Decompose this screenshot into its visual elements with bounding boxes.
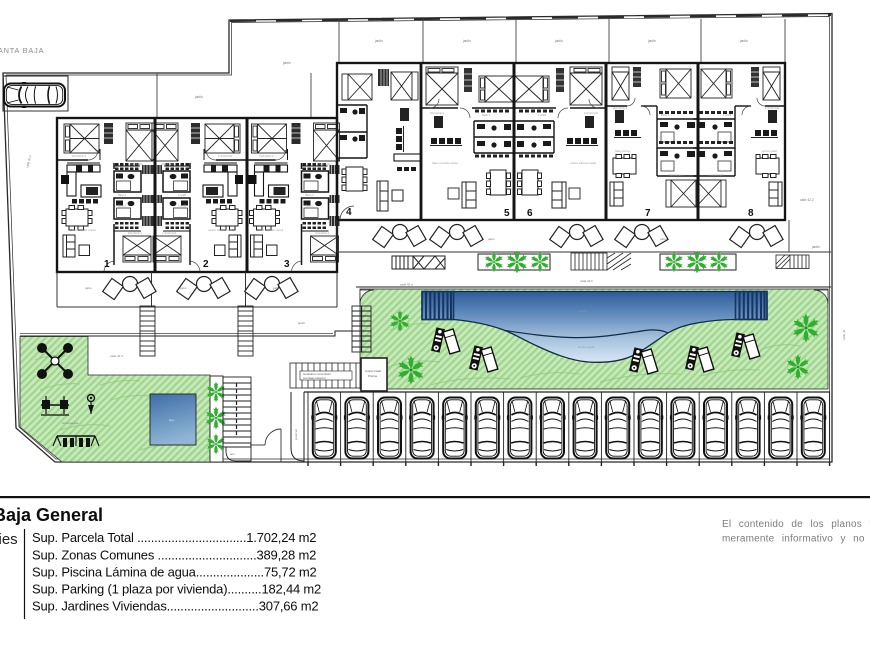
svg-text:patio: patio: [85, 286, 92, 290]
svg-text:calle 42: calle 42: [842, 329, 846, 340]
svg-text:Piscina: Piscina: [368, 374, 377, 378]
svg-text:7: 7: [645, 208, 651, 219]
svg-text:piscina: piscina: [578, 309, 588, 313]
svg-text:jardin: jardin: [811, 245, 820, 249]
svg-text:8: 8: [748, 208, 754, 219]
svg-text:jardin: jardin: [297, 321, 306, 325]
svg-text:(montaje cubierto): (montaje cubierto): [303, 376, 326, 380]
svg-text:lamina agua: lamina agua: [578, 345, 595, 349]
svg-text:Cuarto Instal.: Cuarto Instal.: [365, 369, 382, 373]
svg-text:calle 42.b: calle 42.b: [580, 279, 593, 283]
svg-text:calle 42.a: calle 42.a: [400, 283, 413, 287]
svg-text:cies: cies: [0, 531, 18, 548]
svg-text:1: 1: [104, 259, 110, 270]
svg-text:2: 2: [203, 259, 209, 270]
svg-text:spa: spa: [169, 418, 174, 422]
svg-text:Sup. Piscina Lámina de agua...: Sup. Piscina Lámina de agua.............…: [32, 565, 317, 580]
svg-text:jardin: jardin: [194, 95, 203, 99]
svg-text:3: 3: [284, 259, 290, 270]
svg-text:zona juegos: zona juegos: [62, 421, 79, 425]
svg-text:Sup. Jardines Viviendas.......: Sup. Jardines Viviendas.................…: [32, 599, 318, 614]
svg-text:Baja General: Baja General: [0, 505, 103, 525]
svg-text:calle 42.2: calle 42.2: [800, 198, 814, 202]
svg-text:meramente informativo y no: meramente informativo y no: [722, 534, 865, 545]
svg-text:6: 6: [527, 208, 533, 219]
svg-text:jardin: jardin: [374, 39, 383, 43]
svg-text:patio: patio: [273, 286, 280, 290]
svg-text:El contenido de los planos t: El contenido de los planos t: [722, 519, 870, 530]
svg-text:patio: patio: [180, 286, 187, 290]
svg-text:jardin: jardin: [647, 39, 656, 43]
svg-text:calle 42.3: calle 42.3: [110, 354, 123, 358]
svg-text:jardin: jardin: [554, 39, 563, 43]
svg-text:peatonal: peatonal: [294, 429, 298, 440]
svg-text:acc.: acc.: [230, 452, 236, 456]
svg-text:jardin: jardin: [462, 39, 471, 43]
svg-text:patio: patio: [660, 237, 667, 241]
svg-text:Sup. Zonas Comunes ...........: Sup. Zonas Comunes .....................…: [32, 548, 316, 563]
svg-text:jardin: jardin: [282, 61, 291, 65]
svg-text:5: 5: [504, 208, 510, 219]
svg-text:jardin: jardin: [739, 39, 748, 43]
svg-text:patio: patio: [488, 237, 495, 241]
svg-text:Sup. Parcela Total ...........: Sup. Parcela Total .....................…: [32, 530, 316, 545]
svg-text:ANTA BAJA: ANTA BAJA: [0, 46, 44, 55]
svg-text:4: 4: [346, 207, 352, 218]
svg-text:Sup. Parking (1 plaza por vivi: Sup. Parking (1 plaza por vivienda).....…: [32, 582, 321, 597]
